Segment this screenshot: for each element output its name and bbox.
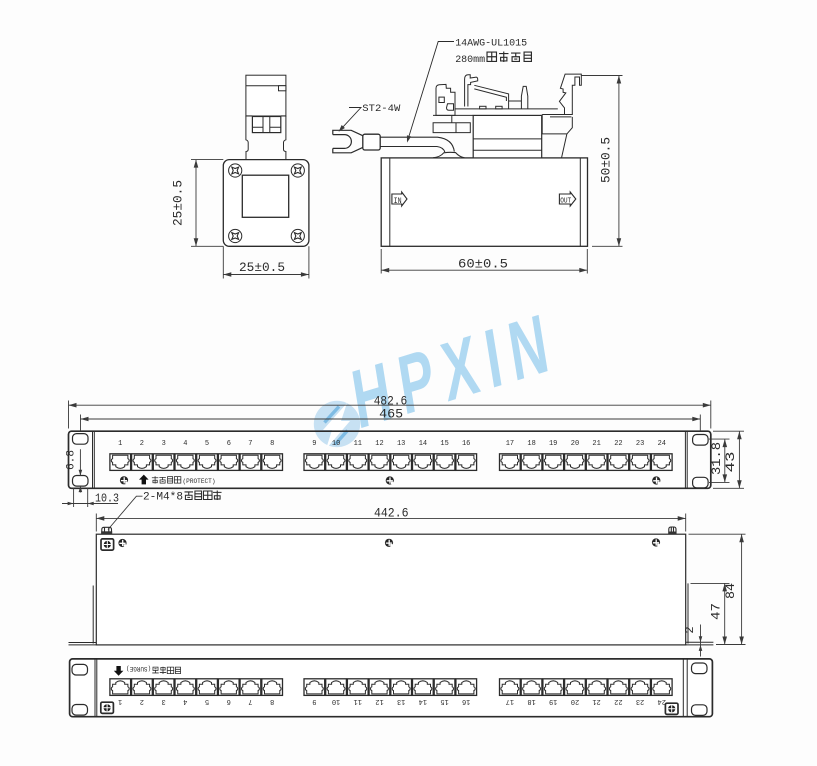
svg-text:1: 1	[118, 697, 122, 705]
svg-text:15: 15	[440, 440, 448, 448]
svg-text:24: 24	[658, 440, 666, 448]
svg-text:2: 2	[683, 626, 697, 633]
svg-text:19: 19	[549, 697, 557, 705]
svg-text:OUT: OUT	[560, 198, 571, 206]
svg-text:2: 2	[140, 440, 144, 448]
svg-text:22: 22	[614, 440, 622, 448]
svg-text:4: 4	[183, 697, 187, 705]
svg-text:442.6: 442.6	[374, 505, 409, 520]
svg-text:14: 14	[419, 440, 427, 448]
svg-text:47: 47	[708, 603, 723, 620]
svg-text:17: 17	[506, 440, 514, 448]
svg-text:16: 16	[462, 440, 470, 448]
svg-text:4: 4	[183, 440, 187, 448]
svg-text:15: 15	[440, 697, 448, 705]
svg-text:18: 18	[527, 440, 535, 448]
svg-text:12: 12	[375, 440, 383, 448]
svg-text:5: 5	[205, 440, 209, 448]
svg-text:9: 9	[312, 440, 316, 448]
svg-text:14AWG-UL1015: 14AWG-UL1015	[455, 38, 527, 49]
svg-text:11: 11	[354, 440, 362, 448]
svg-text:50±0.5: 50±0.5	[599, 137, 614, 183]
svg-text:25±0.5: 25±0.5	[239, 260, 285, 275]
svg-text:IN: IN	[394, 197, 402, 206]
svg-text:2: 2	[140, 697, 144, 705]
svg-text:14: 14	[419, 697, 427, 705]
svg-text:20: 20	[571, 697, 579, 705]
svg-text:280mm: 280mm	[455, 55, 485, 66]
svg-text:7: 7	[248, 440, 252, 448]
svg-text:31.8: 31.8	[709, 442, 724, 475]
svg-text:20: 20	[571, 440, 579, 448]
svg-text:12: 12	[375, 697, 383, 705]
svg-text:10: 10	[332, 440, 340, 448]
svg-text:8: 8	[270, 440, 274, 448]
svg-text:6: 6	[227, 697, 231, 705]
svg-text:21: 21	[592, 697, 600, 705]
svg-text:10.3: 10.3	[95, 492, 119, 506]
svg-text:13: 13	[397, 440, 405, 448]
svg-text:13: 13	[397, 697, 405, 705]
svg-text:465: 465	[379, 406, 403, 421]
svg-text:19: 19	[549, 440, 557, 448]
svg-text:23: 23	[636, 440, 644, 448]
svg-text:17: 17	[506, 697, 514, 705]
svg-text:43: 43	[723, 452, 738, 473]
svg-text:23: 23	[636, 697, 644, 705]
svg-text:1: 1	[118, 440, 122, 448]
svg-text:(PROTECT): (PROTECT)	[183, 478, 216, 486]
svg-text:HPXIN: HPXIN	[346, 293, 563, 446]
svg-text:3: 3	[162, 440, 166, 448]
svg-text:6.8: 6.8	[65, 450, 77, 470]
svg-text:2-M4*8: 2-M4*8	[143, 492, 183, 504]
svg-text:(SURGE): (SURGE)	[126, 664, 151, 672]
svg-text:ST2-4W: ST2-4W	[362, 104, 400, 115]
svg-text:60±0.5: 60±0.5	[458, 257, 508, 272]
svg-text:9: 9	[312, 697, 316, 705]
svg-text:22: 22	[614, 697, 622, 705]
svg-text:3: 3	[162, 697, 166, 705]
svg-text:6: 6	[227, 440, 231, 448]
svg-text:16: 16	[462, 697, 470, 705]
svg-text:18: 18	[527, 697, 535, 705]
svg-text:21: 21	[592, 440, 600, 448]
svg-text:11: 11	[354, 697, 362, 705]
svg-text:10: 10	[332, 697, 340, 705]
svg-text:5: 5	[205, 697, 209, 705]
svg-text:25±0.5: 25±0.5	[171, 180, 186, 226]
svg-text:8: 8	[270, 697, 274, 705]
svg-text:7: 7	[248, 697, 252, 705]
